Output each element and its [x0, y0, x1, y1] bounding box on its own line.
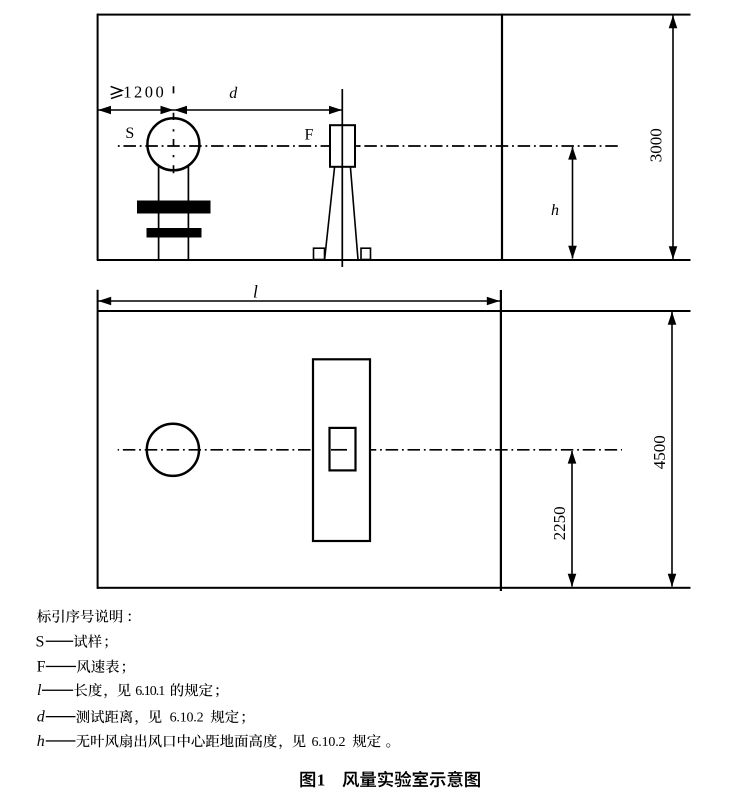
svg-text:S: S [36, 634, 45, 651]
svg-text:2250: 2250 [550, 506, 569, 540]
svg-text:h: h [551, 202, 559, 219]
svg-text:4500: 4500 [650, 435, 669, 469]
svg-text:1200: 1200 [123, 82, 164, 101]
svg-text:d: d [37, 709, 46, 726]
svg-text:6.10.1: 6.10.1 [135, 684, 165, 699]
svg-text:1: 1 [317, 771, 326, 790]
svg-text:3000: 3000 [647, 128, 666, 162]
svg-text:F: F [305, 127, 314, 144]
svg-text:l: l [37, 682, 42, 699]
svg-text:h: h [37, 733, 45, 750]
svg-text:F: F [37, 659, 46, 676]
svg-text:6.10.2: 6.10.2 [170, 711, 204, 726]
svg-text:l: l [253, 282, 258, 302]
svg-text:S: S [125, 125, 134, 142]
svg-text:6.10.2: 6.10.2 [312, 735, 346, 750]
svg-text:d: d [229, 85, 238, 102]
